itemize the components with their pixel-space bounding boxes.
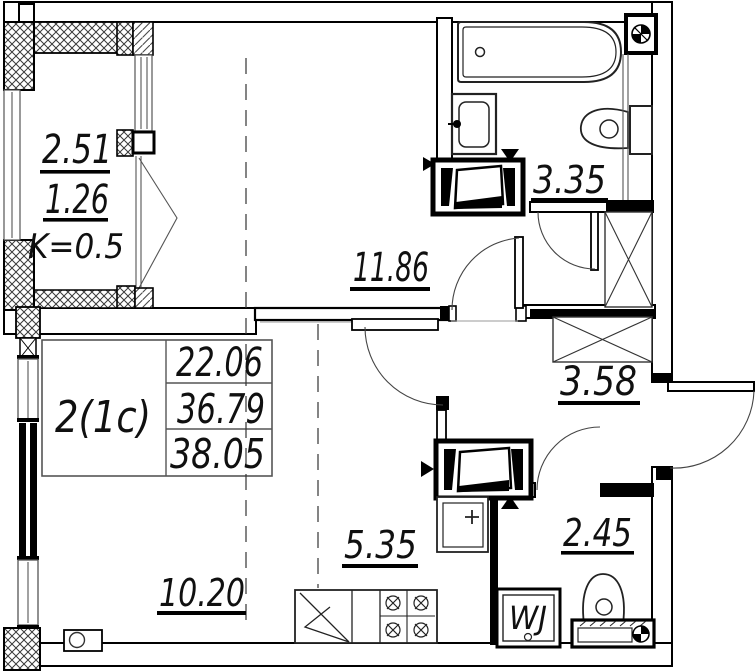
balcony-area-top-label: 2.51 [42,127,112,173]
wall-stub [437,410,446,441]
wall-bathroom-bottom [530,202,607,212]
underline [561,551,634,555]
wall-cap [656,467,672,480]
balcony-area-bottom-label: 1.26 [45,177,109,223]
kitchen-area-label: 5.35 [344,523,417,567]
shaft-x-box [605,212,652,307]
corner-pier-bottom-left [4,628,40,670]
underline [157,611,246,615]
closet-x-box [553,317,652,362]
living-area-label: 11.86 [353,245,429,291]
balcony-pier-top [4,22,34,90]
kitchen-sink-icon [437,497,488,552]
apartment-floor-plan: 2.51 1.26 K=0.5 11.86 3.35 3.58 10.20 5.… [0,0,756,671]
divider-box [133,132,154,153]
wall-middle-left [4,308,256,334]
divider-window [135,55,152,131]
table-value-living: 22.06 [176,340,263,386]
wall-corner-box [19,4,34,23]
window-sill [17,418,39,422]
wall-bathroom-living [437,18,452,163]
wall-hall-thick [530,309,655,317]
kitchen-counter [295,590,437,643]
wc-area-label: 2.45 [563,511,632,555]
underline [558,401,640,405]
balcony-door-dark-sash [19,423,26,556]
door-leaf [591,212,598,270]
table-value-total: 38.05 [170,430,265,478]
door-stop-block [436,396,449,410]
sink-icon [448,94,496,154]
sliding-door-unit [423,149,523,214]
bathroom-area-label: 3.35 [533,158,606,202]
underline [531,198,608,202]
apartment-type-label: 2(1c) [55,392,151,443]
washer-label: WJ [509,599,547,637]
underline [342,564,418,568]
bathtub-icon [458,22,621,82]
wall-cap [652,373,672,382]
divider-pier [117,22,133,55]
underline [350,287,430,291]
divider-pier-mid [117,130,133,156]
stove-icon [380,590,435,643]
hallway-area-label: 3.58 [560,359,637,405]
underline [43,218,108,222]
floor-plan-drawing: 2.51 1.26 K=0.5 11.86 3.35 3.58 10.20 5.… [0,0,756,671]
vent-shaft-icon [626,15,656,53]
wall-cap [440,306,449,321]
balcony-door-dark-sash [30,423,37,556]
wall-wc-top-thick [600,483,654,497]
balcony-coefficient-label: K=0.5 [28,227,124,267]
divider-pier [135,288,153,308]
wall-right-upper [652,2,672,382]
entrance-door-leaf [668,382,754,391]
divider-pier [133,22,153,55]
bedroom-pier-top [16,307,40,338]
table-value-area: 36.79 [177,385,265,433]
wall-top [4,2,672,22]
divider-pier [117,286,135,308]
wall-bathroom-bottom-thick [607,200,654,213]
door-leaf [515,237,523,308]
underline [40,170,110,174]
bedroom-area-label: 10.20 [159,571,245,615]
pipe-riser-icon [633,626,649,642]
